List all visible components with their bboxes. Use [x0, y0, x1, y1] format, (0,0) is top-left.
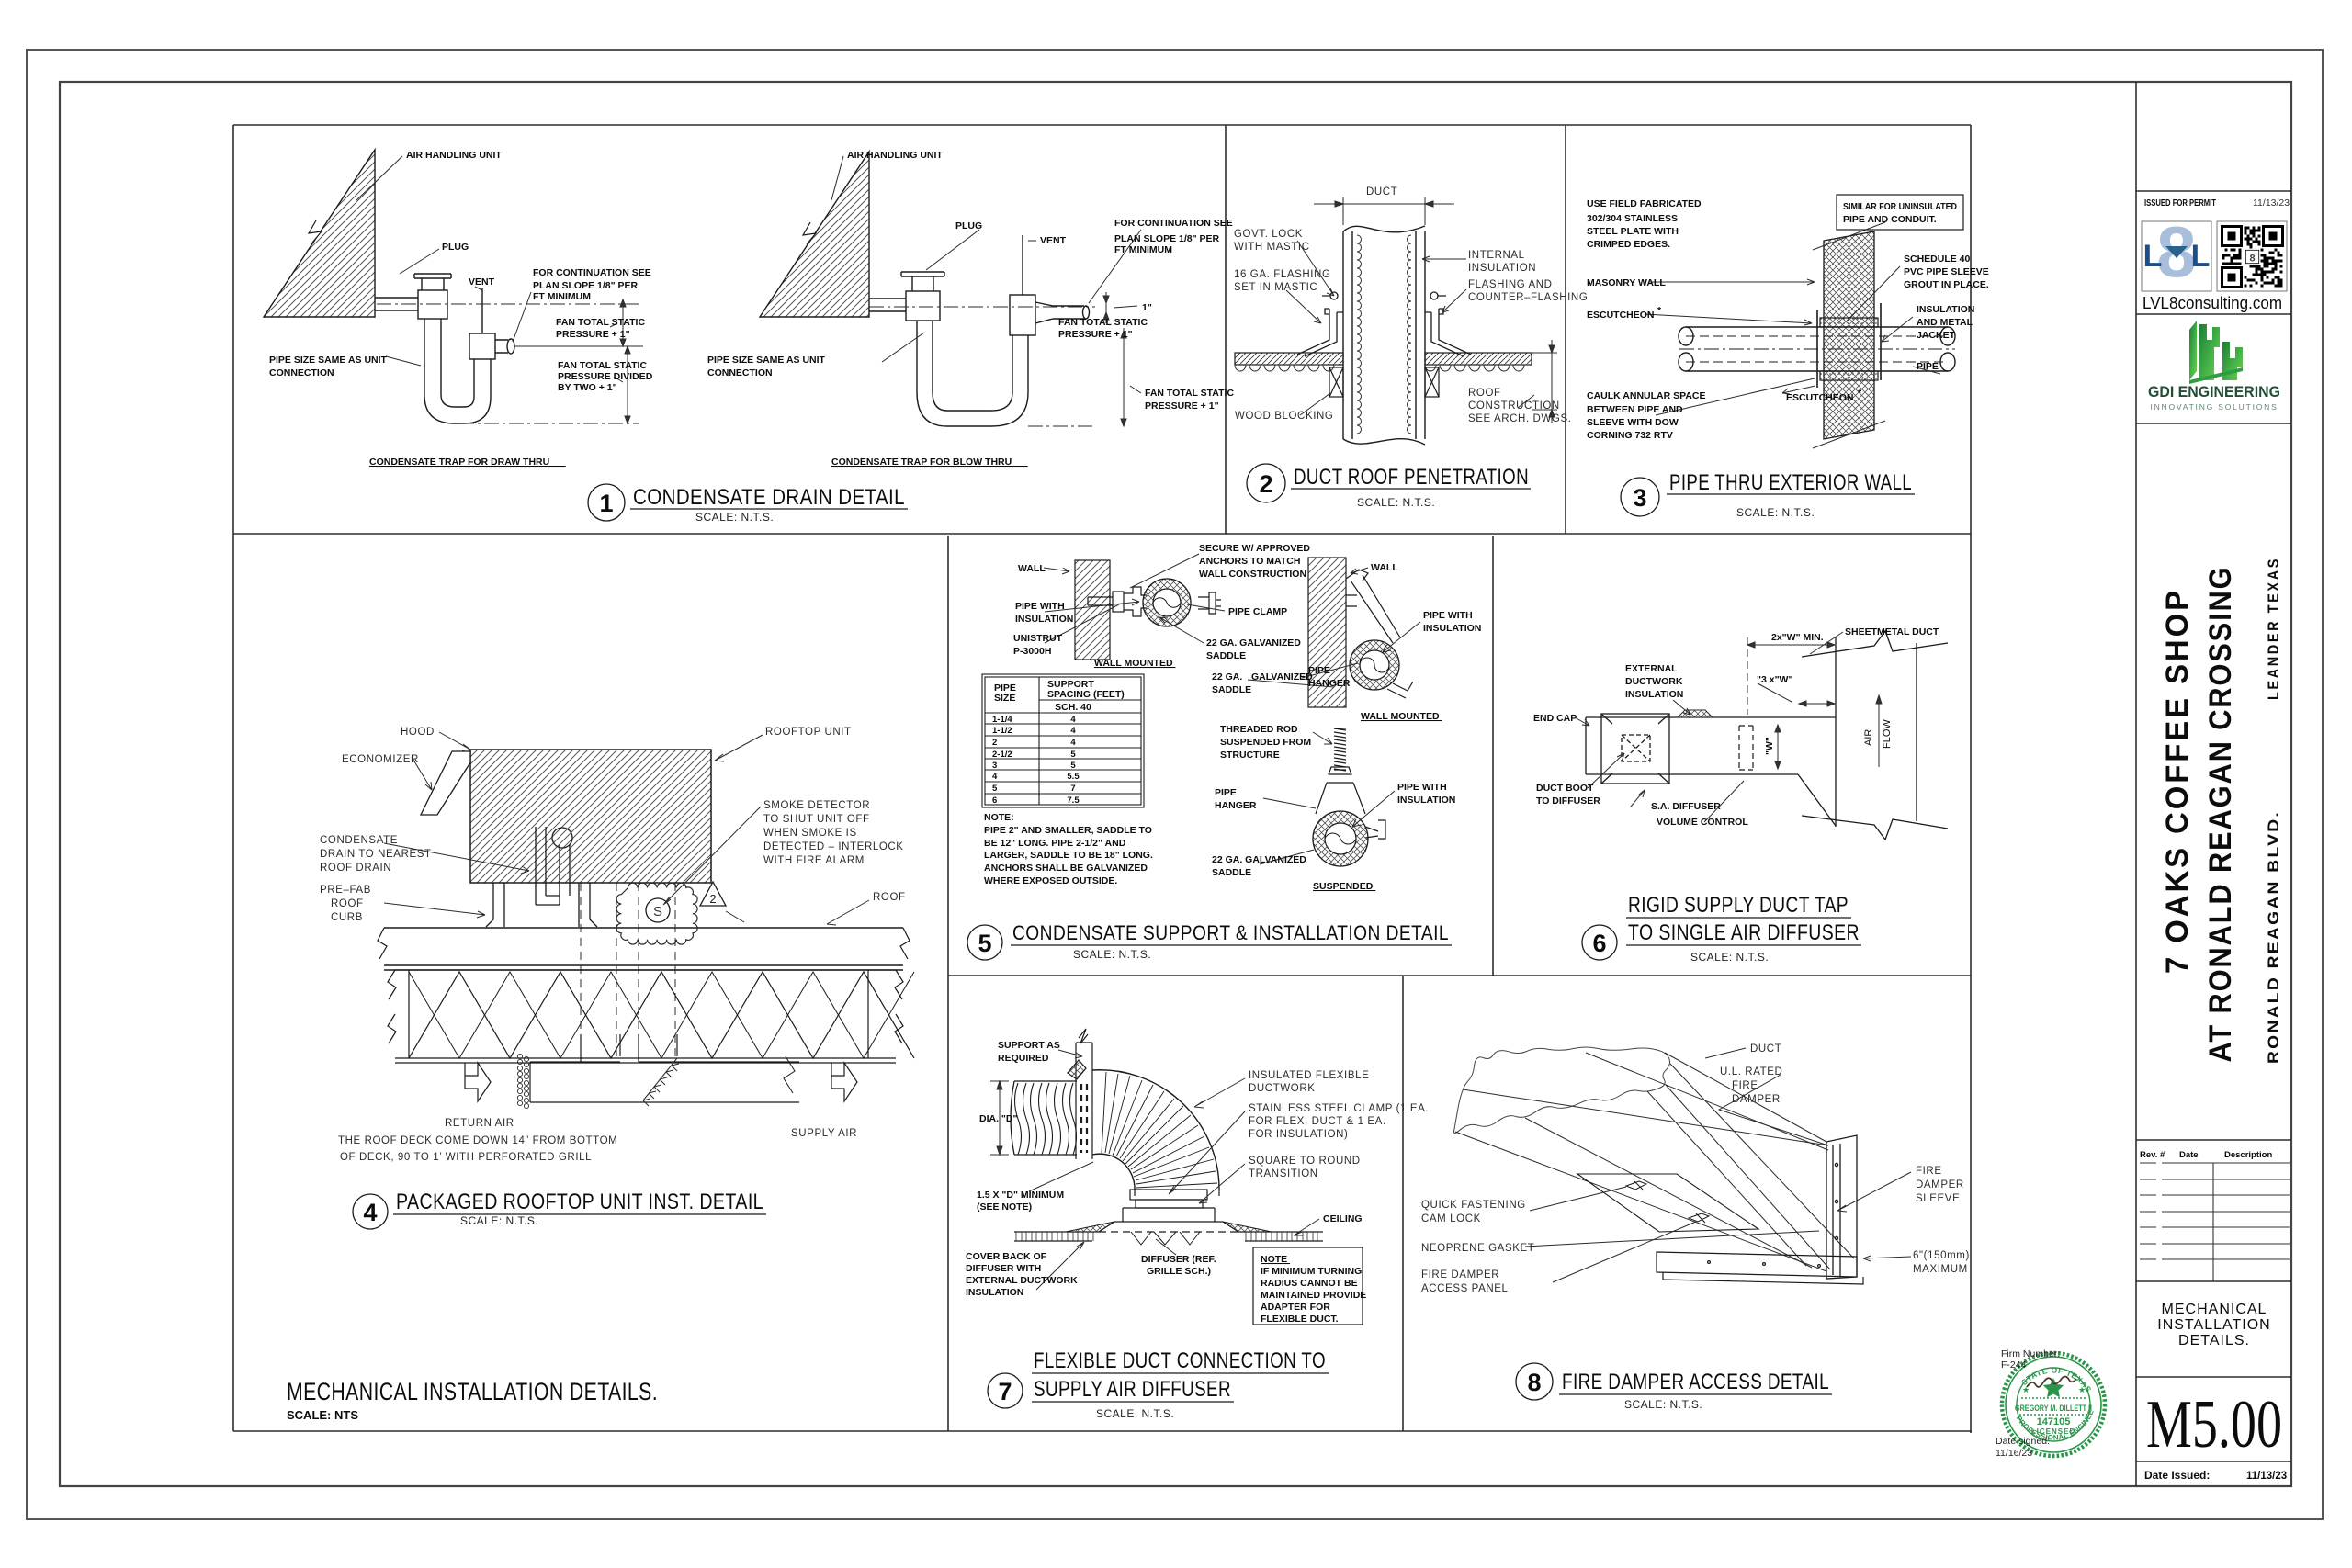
svg-text:INSULATED FLEXIBLE: INSULATED FLEXIBLE [1249, 1070, 1369, 1081]
svg-text:PRESSURE + 1": PRESSURE + 1" [556, 329, 630, 340]
svg-text:4: 4 [363, 1199, 377, 1226]
svg-text:THE ROOF DECK COME DOWN 14” FR: THE ROOF DECK COME DOWN 14” FROM BOTTOM [338, 1135, 617, 1146]
svg-text:16 GA. FLASHING: 16 GA. FLASHING [1234, 269, 1331, 280]
svg-text:FAN TOTAL STATIC: FAN TOTAL STATIC [558, 360, 647, 371]
svg-text:AT RONALD REAGAN CROSSING: AT RONALD REAGAN CROSSING [2203, 566, 2238, 1063]
svg-text:WOOD BLOCKING: WOOD BLOCKING [1235, 411, 1333, 422]
svg-text:FIRE: FIRE [1916, 1166, 1942, 1177]
svg-text:WALL: WALL [1371, 562, 1398, 573]
svg-text:U.L. RATED: U.L. RATED [1720, 1066, 1782, 1077]
svg-text:PIPE SIZE SAME AS UNIT: PIPE SIZE SAME AS UNIT [707, 355, 826, 366]
svg-text:2: 2 [992, 738, 997, 748]
svg-text:F-244: F-244 [2001, 1359, 2027, 1371]
svg-text:ESCUTCHEON: ESCUTCHEON [1786, 392, 1854, 403]
svg-text:ADAPTER FOR: ADAPTER FOR [1261, 1302, 1330, 1313]
svg-text:SCALE: N.T.S.: SCALE: N.T.S. [1357, 496, 1435, 509]
svg-text:7: 7 [1070, 784, 1075, 794]
svg-text:PLUG: PLUG [955, 220, 982, 231]
svg-text:PACKAGED ROOFTOP UNIT INST. DE: PACKAGED ROOFTOP UNIT INST. DETAIL [396, 1190, 763, 1214]
svg-text:ISSUED FOR PERMIT: ISSUED FOR PERMIT [2144, 198, 2216, 209]
svg-text:6: 6 [1592, 930, 1606, 957]
svg-text:PLAN SLOPE 1/8" PER: PLAN SLOPE 1/8" PER [1114, 233, 1220, 244]
svg-text:FOR CONTINUATION SEE: FOR CONTINUATION SEE [1114, 218, 1233, 229]
svg-text:NOTE: NOTE [1261, 1254, 1290, 1265]
svg-text:2-1/2: 2-1/2 [992, 750, 1012, 760]
svg-text:2x"W" MIN.: 2x"W" MIN. [1771, 632, 1824, 643]
svg-text:4: 4 [1070, 715, 1076, 725]
svg-text:3: 3 [992, 761, 997, 771]
svg-text:TRANSITION: TRANSITION [1249, 1168, 1318, 1179]
svg-text:"W": "W" [1764, 737, 1775, 755]
svg-text:SLEEVE WITH DOW: SLEEVE WITH DOW [1587, 417, 1679, 428]
svg-text:COUNTER–FLASHING: COUNTER–FLASHING [1468, 292, 1588, 303]
svg-text:SCH. 40: SCH. 40 [1055, 702, 1091, 713]
svg-text:AIR: AIR [1863, 729, 1874, 746]
svg-text:DAMPER: DAMPER [1732, 1094, 1781, 1105]
svg-text:L: L [2191, 239, 2211, 274]
svg-text:STAINLESS STEEL CLAMP (1 EA.: STAINLESS STEEL CLAMP (1 EA. [1249, 1103, 1429, 1114]
svg-text:DUCT BOOT: DUCT BOOT [1536, 783, 1594, 794]
svg-text:M5.00: M5.00 [2146, 1387, 2282, 1462]
svg-text:TO SINGLE AIR DIFFUSER: TO SINGLE AIR DIFFUSER [1628, 920, 1860, 945]
svg-text:1-1/2: 1-1/2 [992, 726, 1012, 736]
svg-text:GRILLE SCH.): GRILLE SCH.) [1147, 1266, 1211, 1277]
svg-text:SECURE W/ APPROVED: SECURE W/ APPROVED [1199, 543, 1310, 554]
svg-text:4: 4 [992, 772, 998, 782]
svg-text:VENT: VENT [1040, 235, 1067, 246]
svg-text:PIPE: PIPE [1308, 665, 1330, 676]
svg-text:PIPE SIZE SAME AS UNIT: PIPE SIZE SAME AS UNIT [269, 355, 388, 366]
svg-text:WALL MOUNTED: WALL MOUNTED [1361, 711, 1442, 722]
svg-text:SADDLE: SADDLE [1206, 650, 1246, 661]
svg-text:SET IN MASTIC: SET IN MASTIC [1234, 282, 1317, 293]
svg-text:FAN TOTAL STATIC: FAN TOTAL STATIC [1058, 317, 1148, 328]
svg-text:OF DECK, 90 TO 1’ WITH PERFORA: OF DECK, 90 TO 1’ WITH PERFORATED GRILL [340, 1152, 592, 1163]
svg-text:HANGER: HANGER [1215, 800, 1257, 811]
svg-text:RONALD REAGAN BLVD.: RONALD REAGAN BLVD. [2265, 810, 2282, 1064]
svg-text:CONDENSATE TRAP FOR DRAW THRU: CONDENSATE TRAP FOR DRAW THRU [369, 457, 566, 468]
svg-text:PIPE WITH: PIPE WITH [1397, 782, 1447, 793]
svg-text:QUICK FASTENING: QUICK FASTENING [1421, 1200, 1526, 1211]
svg-text:CRIMPED EDGES.: CRIMPED EDGES. [1587, 239, 1670, 250]
svg-text:CAM LOCK: CAM LOCK [1421, 1213, 1481, 1224]
svg-text:COVER BACK OF: COVER BACK OF [966, 1251, 1047, 1262]
svg-text:DUCT: DUCT [1366, 186, 1397, 197]
svg-text:WITH MASTIC: WITH MASTIC [1234, 242, 1310, 253]
svg-text:SUPPORT AS: SUPPORT AS [998, 1040, 1060, 1051]
svg-text:CONSTRUCTION: CONSTRUCTION [1468, 400, 1560, 412]
svg-text:7: 7 [998, 1378, 1012, 1405]
svg-text:GDI ENGINEERING: GDI ENGINEERING [2148, 383, 2280, 400]
svg-text:DUCTWORK: DUCTWORK [1625, 676, 1683, 687]
svg-text:SPACING (FEET): SPACING (FEET) [1047, 689, 1125, 700]
svg-text:6"(150mm): 6"(150mm) [1913, 1250, 1970, 1261]
svg-text:MAXIMUM: MAXIMUM [1913, 1264, 1968, 1275]
svg-text:MASONRY WALL: MASONRY WALL [1587, 277, 1666, 288]
svg-text:7 OAKS COFFEE SHOP: 7 OAKS COFFEE SHOP [2160, 588, 2195, 974]
svg-text:SCHEDULE 40: SCHEDULE 40 [1904, 254, 1971, 265]
svg-text:DIFFUSER WITH: DIFFUSER WITH [966, 1263, 1041, 1274]
svg-text:EXTERNAL: EXTERNAL [1625, 663, 1678, 674]
svg-text:FIRE DAMPER ACCESS DETAIL: FIRE DAMPER ACCESS DETAIL [1562, 1370, 1829, 1394]
svg-text:REQUIRED: REQUIRED [998, 1053, 1049, 1064]
svg-text:RIGID SUPPLY DUCT TAP: RIGID SUPPLY DUCT TAP [1628, 893, 1849, 918]
svg-text:INSULATION: INSULATION [966, 1287, 1023, 1298]
svg-text:BETWEEN PIPE AND: BETWEEN PIPE AND [1587, 404, 1683, 415]
svg-text:DRAIN TO NEAREST: DRAIN TO NEAREST [320, 849, 432, 860]
svg-text:FLEXIBLE DUCT.: FLEXIBLE DUCT. [1261, 1314, 1339, 1325]
svg-text:22 GA.: 22 GA. [1212, 671, 1242, 682]
svg-text:LVL8consulting.com: LVL8consulting.com [2143, 294, 2282, 312]
svg-text:SHEETMETAL DUCT: SHEETMETAL DUCT [1845, 626, 1939, 637]
svg-text:PIPE 2" AND SMALLER, SADDLE TO: PIPE 2" AND SMALLER, SADDLE TO [984, 825, 1152, 836]
svg-text:★: ★ [2078, 1385, 2086, 1394]
svg-text:(SEE NOTE): (SEE NOTE) [977, 1201, 1032, 1213]
svg-text:22 GA. GALVANIZED: 22 GA. GALVANIZED [1206, 637, 1301, 649]
svg-text:AIR HANDLING UNIT: AIR HANDLING UNIT [406, 150, 502, 161]
svg-text:CURB: CURB [331, 912, 363, 923]
svg-text:SUPPLY AIR: SUPPLY AIR [791, 1128, 857, 1139]
svg-text:LEANDER TEXAS: LEANDER TEXAS [2265, 557, 2282, 700]
svg-text:4: 4 [1070, 738, 1076, 748]
svg-text:SUSPENDED FROM: SUSPENDED FROM [1220, 737, 1311, 748]
svg-text:1.5 X "D" MINIMUM: 1.5 X "D" MINIMUM [977, 1190, 1064, 1201]
svg-text:SCALE: NTS: SCALE: NTS [287, 1408, 358, 1422]
svg-text:NEOPRENE GASKET: NEOPRENE GASKET [1421, 1243, 1534, 1254]
svg-text:RADIUS CANNOT BE: RADIUS CANNOT BE [1261, 1278, 1358, 1289]
svg-text:FAN TOTAL STATIC: FAN TOTAL STATIC [1145, 388, 1234, 399]
svg-text:FLOW: FLOW [1882, 719, 1893, 749]
svg-text:302/304 STAINLESS: 302/304 STAINLESS [1587, 213, 1678, 224]
svg-text:147105: 147105 [2037, 1416, 2071, 1427]
svg-text:SCALE: N.T.S.: SCALE: N.T.S. [460, 1214, 538, 1227]
svg-text:AIR HANDLING UNIT: AIR HANDLING UNIT [847, 150, 943, 161]
svg-text:7.5: 7.5 [1067, 795, 1080, 806]
svg-text:8: 8 [2249, 253, 2255, 264]
svg-text:5: 5 [978, 930, 991, 957]
svg-text:END CAP: END CAP [1533, 713, 1577, 724]
svg-text:IF MINIMUM TURNING: IF MINIMUM TURNING [1261, 1266, 1362, 1277]
svg-text:WITH FIRE ALARM: WITH FIRE ALARM [763, 855, 865, 866]
svg-text:ROOF DRAIN: ROOF DRAIN [320, 863, 391, 874]
svg-text:THREADED ROD: THREADED ROD [1220, 724, 1298, 735]
svg-text:S: S [653, 904, 662, 919]
svg-text:SIMILAR FOR UNINSULATED: SIMILAR FOR UNINSULATED [1843, 201, 1957, 212]
svg-text:INSULATION: INSULATION [1917, 304, 1974, 315]
svg-text:4: 4 [1070, 726, 1076, 736]
svg-text:CONNECTION: CONNECTION [707, 367, 773, 378]
svg-text:ANCHORS TO MATCH: ANCHORS TO MATCH [1199, 556, 1300, 567]
svg-text:1": 1" [1142, 302, 1152, 313]
svg-text:L: L [2143, 239, 2163, 274]
svg-text:11/16/23: 11/16/23 [1996, 1448, 2032, 1459]
svg-text:2: 2 [709, 892, 716, 906]
svg-text:CONNECTION: CONNECTION [269, 367, 334, 378]
svg-text:TO DIFFUSER: TO DIFFUSER [1536, 795, 1600, 807]
svg-text:ACCESS PANEL: ACCESS PANEL [1421, 1283, 1509, 1294]
svg-text:FT MINIMUM: FT MINIMUM [533, 291, 591, 302]
svg-text:SIZE: SIZE [994, 693, 1015, 704]
svg-text:FIRE DAMPER: FIRE DAMPER [1421, 1269, 1499, 1280]
svg-text:HOOD: HOOD [401, 727, 435, 738]
svg-text:PVC PIPE SLEEVE: PVC PIPE SLEEVE [1904, 266, 1989, 277]
svg-text:WHEN SMOKE IS: WHEN SMOKE IS [763, 828, 857, 839]
svg-text:Firm Number:: Firm Number: [2001, 1348, 2060, 1359]
svg-text:STEEL PLATE WITH: STEEL PLATE WITH [1587, 226, 1679, 237]
svg-text:ROOF: ROOF [331, 898, 364, 909]
svg-text:SADDLE: SADDLE [1212, 867, 1251, 878]
svg-text:SCALE: N.T.S.: SCALE: N.T.S. [1624, 1398, 1702, 1411]
svg-text:LARGER, SADDLE TO BE 18" LONG.: LARGER, SADDLE TO BE 18" LONG. [984, 850, 1153, 861]
svg-text:5: 5 [1070, 750, 1076, 760]
svg-text:FLASHING AND: FLASHING AND [1468, 279, 1553, 290]
svg-text:DIFFUSER (REF.: DIFFUSER (REF. [1141, 1254, 1216, 1265]
svg-text:NOTE:: NOTE: [984, 812, 1014, 823]
svg-text:SQUARE TO ROUND: SQUARE TO ROUND [1249, 1156, 1361, 1167]
svg-text:GROUT IN PLACE.: GROUT IN PLACE. [1904, 279, 1989, 290]
svg-text:DETAILS.: DETAILS. [2178, 1333, 2250, 1348]
svg-text:WALL CONSTRUCTION: WALL CONSTRUCTION [1199, 569, 1306, 580]
svg-text:SCALE: N.T.S.: SCALE: N.T.S. [695, 511, 774, 524]
svg-text:PLAN SLOPE 1/8" PER: PLAN SLOPE 1/8" PER [533, 280, 639, 291]
svg-text:INNOVATING SOLUTIONS: INNOVATING SOLUTIONS [2150, 402, 2278, 412]
svg-text:2: 2 [1259, 470, 1272, 498]
svg-text:DETECTED – INTERLOCK: DETECTED – INTERLOCK [763, 841, 904, 852]
svg-text:PIPE: PIPE [1917, 361, 1939, 372]
svg-text:FAN TOTAL STATIC: FAN TOTAL STATIC [556, 317, 645, 328]
svg-text:RETURN AIR: RETURN AIR [445, 1118, 514, 1129]
svg-text:SLEEVE: SLEEVE [1916, 1193, 1960, 1204]
svg-text:11/13/23: 11/13/23 [2246, 1471, 2287, 1482]
svg-text:6: 6 [992, 795, 997, 806]
svg-text:PIPE THRU EXTERIOR WALL: PIPE THRU EXTERIOR WALL [1669, 470, 1912, 495]
svg-text:DUCT ROOF PENETRATION: DUCT ROOF PENETRATION [1294, 465, 1529, 490]
svg-text:Date signed:: Date signed: [1996, 1436, 2050, 1447]
svg-text:MAINTAINED PROVIDE: MAINTAINED PROVIDE [1261, 1290, 1366, 1301]
svg-text:ROOF: ROOF [1468, 388, 1501, 399]
svg-text:Rev. #: Rev. # [2140, 1150, 2165, 1160]
svg-text:INSULATION: INSULATION [1397, 795, 1455, 806]
svg-text:BE 12" LONG. PIPE 2-1/2" AND: BE 12" LONG. PIPE 2-1/2" AND [984, 838, 1126, 849]
svg-text:SCALE: N.T.S.: SCALE: N.T.S. [1690, 951, 1769, 964]
svg-text:P-3000H: P-3000H [1013, 646, 1051, 657]
svg-text:SCALE: N.T.S.: SCALE: N.T.S. [1073, 948, 1151, 961]
svg-text:WALL MOUNTED: WALL MOUNTED [1094, 658, 1175, 669]
svg-text:Description: Description [2224, 1150, 2272, 1160]
svg-text:HANGER: HANGER [1308, 678, 1351, 689]
svg-text:ROOF: ROOF [873, 892, 906, 903]
svg-text:ROOFTOP UNIT: ROOFTOP UNIT [765, 727, 852, 738]
svg-text:S.A. DIFFUSER: S.A. DIFFUSER [1651, 801, 1721, 812]
svg-text:SUPPLY AIR DIFFUSER: SUPPLY AIR DIFFUSER [1034, 1377, 1231, 1402]
svg-text:CORNING 732 RTV: CORNING 732 RTV [1587, 430, 1673, 441]
svg-text:STRUCTURE: STRUCTURE [1220, 750, 1280, 761]
svg-text:SCALE: N.T.S.: SCALE: N.T.S. [1736, 506, 1815, 519]
svg-text:LICENSED: LICENSED [2031, 1427, 2075, 1436]
svg-text:Date Issued:: Date Issued: [2144, 1469, 2210, 1482]
svg-text:3: 3 [1633, 484, 1646, 512]
svg-text:5: 5 [992, 784, 998, 794]
svg-text:VOLUME CONTROL: VOLUME CONTROL [1657, 817, 1748, 828]
svg-text:TO SHUT UNIT OFF: TO SHUT UNIT OFF [763, 814, 870, 825]
svg-text:WALL: WALL [1018, 563, 1046, 574]
svg-text:INTERNAL: INTERNAL [1468, 250, 1525, 261]
svg-text:PRESSURE + 1": PRESSURE + 1" [1058, 329, 1133, 340]
svg-text:PIPE WITH: PIPE WITH [1423, 610, 1473, 621]
svg-text:MECHANICAL INSTALLATION DETAIL: MECHANICAL INSTALLATION DETAILS. [287, 1378, 658, 1405]
svg-text:PIPE CLAMP: PIPE CLAMP [1228, 606, 1287, 617]
svg-text:SMOKE DETECTOR: SMOKE DETECTOR [763, 800, 870, 811]
svg-text:Date: Date [2179, 1150, 2199, 1160]
svg-text:8: 8 [1527, 1369, 1541, 1396]
svg-text:CONDENSATE SUPPORT & INSTALLAT: CONDENSATE SUPPORT & INSTALLATION DETAIL [1012, 921, 1449, 944]
svg-text:GREGORY M. DILLETT II: GREGORY M. DILLETT II [2015, 1404, 2092, 1414]
svg-text:CONDENSATE DRAIN DETAIL: CONDENSATE DRAIN DETAIL [633, 485, 905, 510]
svg-text:1-1/4: 1-1/4 [992, 715, 1012, 725]
svg-text:FOR FLEX. DUCT & 1 EA.: FOR FLEX. DUCT & 1 EA. [1249, 1116, 1386, 1127]
svg-text:JACKET: JACKET [1917, 330, 1956, 341]
svg-text:VENT: VENT [469, 276, 495, 288]
svg-text:PRE–FAB: PRE–FAB [320, 885, 371, 896]
svg-text:DIA. "D": DIA. "D" [979, 1113, 1017, 1124]
svg-text:PRESSURE DIVIDED: PRESSURE DIVIDED [558, 371, 653, 382]
svg-text:ANCHORS SHALL BE GALVANIZED: ANCHORS SHALL BE GALVANIZED [984, 863, 1148, 874]
svg-text:SADDLE: SADDLE [1212, 684, 1251, 695]
svg-text:★: ★ [2022, 1385, 2030, 1394]
svg-text:5.5: 5.5 [1067, 772, 1080, 782]
svg-text:11/13/23: 11/13/23 [2253, 197, 2290, 209]
svg-text:22 GA. GALVANIZED: 22 GA. GALVANIZED [1212, 854, 1306, 865]
svg-text:INSULATION: INSULATION [1423, 623, 1481, 634]
svg-text:"3 x"W": "3 x"W" [1757, 674, 1792, 685]
svg-text:5: 5 [1070, 761, 1076, 771]
svg-text:DUCTWORK: DUCTWORK [1249, 1083, 1316, 1094]
svg-text:CEILING: CEILING [1323, 1213, 1363, 1224]
svg-text:GALVANIZED: GALVANIZED [1251, 671, 1313, 682]
svg-text:PIPE WITH: PIPE WITH [1015, 601, 1065, 612]
svg-text:INSULATION: INSULATION [1468, 263, 1536, 274]
svg-text:FOR CONTINUATION SEE: FOR CONTINUATION SEE [533, 267, 651, 278]
svg-text:PIPE: PIPE [1215, 787, 1237, 798]
svg-text:INSULATION: INSULATION [1015, 614, 1073, 625]
svg-text:INSTALLATION: INSTALLATION [2157, 1317, 2270, 1333]
svg-text:FIRE: FIRE [1732, 1080, 1758, 1091]
svg-text:UNISTRUT: UNISTRUT [1013, 633, 1063, 644]
svg-text:SEE ARCH. DWGS.: SEE ARCH. DWGS. [1468, 413, 1572, 424]
svg-text:DAMPER: DAMPER [1916, 1179, 1964, 1190]
svg-text:AND METAL: AND METAL [1917, 317, 1973, 328]
svg-text:CONDENSATE TRAP FOR BLOW THRU: CONDENSATE TRAP FOR BLOW THRU [831, 457, 1028, 468]
svg-text:PRESSURE + 1": PRESSURE + 1" [1145, 400, 1219, 412]
svg-text:PLUG: PLUG [442, 242, 469, 253]
svg-text:CAULK ANNULAR SPACE: CAULK ANNULAR SPACE [1587, 390, 1706, 401]
svg-text:CONDENSATE: CONDENSATE [320, 835, 398, 846]
svg-text:MECHANICAL: MECHANICAL [2162, 1302, 2267, 1317]
svg-text:SUSPENDED: SUSPENDED [1313, 881, 1375, 892]
svg-text:BY TWO + 1": BY TWO + 1" [558, 382, 617, 393]
svg-text:FOR INSULATION): FOR INSULATION) [1249, 1129, 1348, 1140]
svg-text:DUCT: DUCT [1750, 1043, 1781, 1055]
svg-text:PIPE AND CONDUIT.: PIPE AND CONDUIT. [1843, 214, 1937, 225]
svg-text:FLEXIBLE DUCT CONNECTION TO: FLEXIBLE DUCT CONNECTION TO [1034, 1348, 1326, 1373]
svg-text:GOVT. LOCK: GOVT. LOCK [1234, 229, 1303, 240]
svg-text:USE FIELD FABRICATED: USE FIELD FABRICATED [1587, 198, 1702, 209]
svg-text:EXTERNAL DUCTWORK: EXTERNAL DUCTWORK [966, 1275, 1078, 1286]
svg-text:ESCUTCHEON: ESCUTCHEON [1587, 310, 1655, 321]
svg-text:ECONOMIZER: ECONOMIZER [342, 754, 419, 765]
svg-text:INSULATION: INSULATION [1625, 689, 1683, 700]
svg-text:1: 1 [599, 490, 613, 517]
svg-text:SCALE: N.T.S.: SCALE: N.T.S. [1096, 1407, 1174, 1420]
svg-text:FT MINIMUM: FT MINIMUM [1114, 244, 1172, 255]
svg-text:WHERE EXPOSED OUTSIDE.: WHERE EXPOSED OUTSIDE. [984, 875, 1117, 886]
